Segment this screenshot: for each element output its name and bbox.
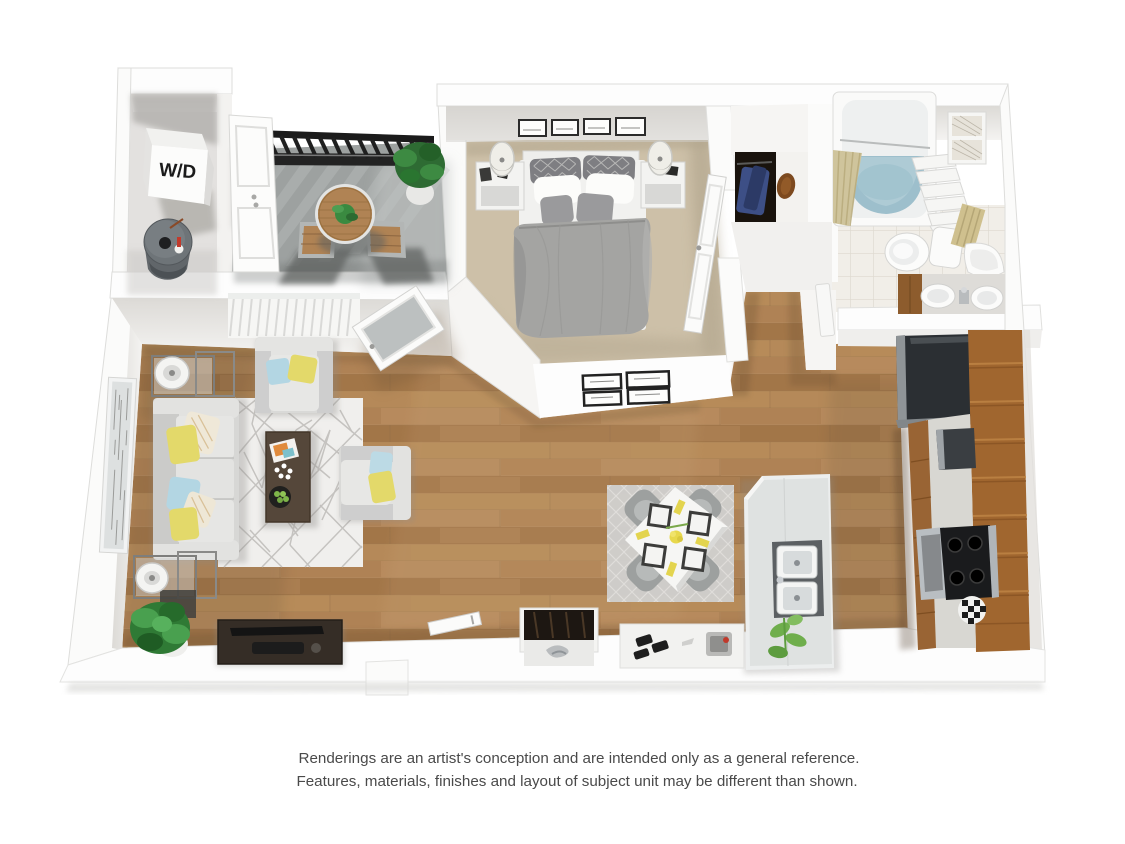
svg-text:Renderings are an artist's con: Renderings are an artist's conception an…: [299, 750, 860, 767]
svg-text:W/D: W/D: [158, 160, 196, 184]
svg-text:Features, materials, finishes: Features, materials, finishes and layout…: [296, 773, 857, 790]
